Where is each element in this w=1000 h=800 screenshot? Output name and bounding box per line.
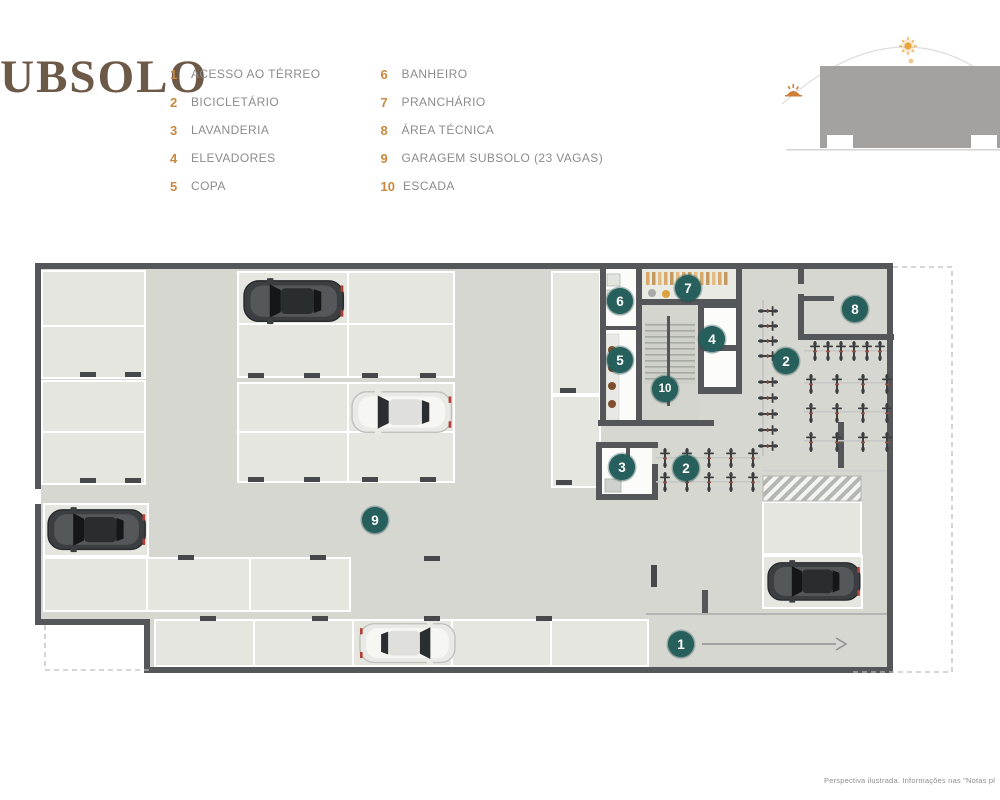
building-notch (971, 135, 997, 148)
bike-rack-rail (804, 440, 892, 442)
wall (626, 448, 630, 476)
wall-left (35, 263, 41, 625)
surfboard-icon (646, 272, 650, 285)
wheel-stop (304, 373, 320, 378)
surfboard-icon (664, 272, 668, 285)
bike-rack-rail (804, 411, 892, 413)
wheel-stop (304, 477, 320, 482)
parking-space (250, 558, 350, 611)
sun-path-diagram (782, 37, 1000, 151)
ramp-edge (646, 613, 887, 615)
wall-top (35, 263, 893, 269)
surfboard-icon (670, 272, 674, 285)
parking-space (155, 620, 254, 666)
surfboard-icon (658, 272, 662, 285)
wall (596, 494, 658, 500)
surfboard-icon (700, 272, 704, 285)
wheel-stop (310, 555, 326, 560)
wall (600, 269, 606, 426)
wall-bottom (144, 667, 893, 673)
parking-space (763, 502, 861, 554)
wall-stub (702, 590, 708, 615)
stool-icon (608, 400, 616, 408)
surfboard-icon (706, 272, 710, 285)
wheel-stop (178, 555, 194, 560)
elevator-shaft (704, 308, 736, 345)
wall (736, 269, 742, 302)
parking-space (238, 383, 348, 432)
surfboard-icon (688, 272, 692, 285)
wall (838, 422, 844, 468)
parking-space (238, 432, 348, 482)
wheel-stop (420, 373, 436, 378)
wheel-stop (312, 616, 328, 621)
property-boundary (45, 625, 150, 670)
sunset-icon (785, 84, 802, 97)
wheel-stop (200, 616, 216, 621)
floor-plan (0, 0, 1000, 800)
parking-space (42, 326, 145, 378)
parking-space (552, 396, 600, 487)
wall (636, 269, 642, 426)
bike-rack-rail (656, 457, 760, 459)
wheel-stop (424, 616, 440, 621)
wall (798, 268, 804, 284)
wheel-stop (80, 478, 96, 483)
helmet-icon (648, 289, 656, 297)
page: SUBSOLO 1ACESSO AO TÉRREO2BICICLETÁRIO3L… (0, 0, 1000, 800)
helmet-icon (662, 290, 670, 298)
wheel-stop (248, 373, 264, 378)
wall-step (144, 619, 150, 673)
wheel-stop (556, 480, 572, 485)
wall (596, 442, 602, 500)
wheel-stop (248, 477, 264, 482)
divider-line (763, 470, 893, 472)
wheel-stop (362, 373, 378, 378)
car-dark-bottom-right (768, 560, 860, 603)
wheel-stop (125, 478, 141, 483)
hatch-area (763, 476, 861, 501)
wheel-stop (362, 477, 378, 482)
surfboard-icon (682, 272, 686, 285)
stair-rail (667, 316, 670, 406)
parking-space (147, 558, 250, 611)
elevator-shaft (704, 351, 736, 387)
wall (798, 294, 804, 340)
sink-icon (607, 290, 620, 304)
bike-rack-rail (762, 300, 764, 456)
wall (804, 296, 834, 301)
parking-space (452, 620, 551, 666)
wall-opening (35, 489, 41, 504)
car-dark-top (244, 278, 343, 324)
parking-space (348, 272, 454, 324)
wall-right (887, 263, 893, 673)
bike-rack-rail (656, 481, 760, 483)
car-dark-left (48, 507, 145, 552)
wall (598, 420, 714, 426)
parking-space (42, 432, 145, 484)
wall-step (35, 619, 150, 625)
parking-space (552, 272, 600, 394)
washer-icon (605, 479, 621, 492)
surfboard-icon (676, 272, 680, 285)
parking-space (254, 620, 353, 666)
wheel-stop (420, 477, 436, 482)
ground-line (786, 149, 1000, 151)
car-white-bottom (360, 621, 455, 665)
stool-icon (608, 382, 616, 390)
room-lavanderia (596, 442, 658, 500)
wheel-stop (651, 565, 657, 587)
parking-space (348, 324, 454, 377)
stool-icon (608, 364, 616, 372)
wheel-stop (560, 388, 576, 393)
surfboard-icon (712, 272, 716, 285)
parking-space (348, 432, 454, 482)
wheel-stop (424, 556, 440, 561)
parking-space (551, 620, 648, 666)
surfboard-icon (652, 272, 656, 285)
building-notch (827, 135, 853, 148)
surfboard-icon (718, 272, 722, 285)
wheel-stop (125, 372, 141, 377)
wall (636, 299, 742, 305)
bike-rack-rail (804, 350, 890, 352)
toilet-icon (607, 274, 620, 286)
wheel-stop (80, 372, 96, 377)
surfboard-icon (724, 272, 728, 285)
parking-space (42, 271, 145, 326)
sun-icon (899, 37, 917, 63)
surfboard-icon (694, 272, 698, 285)
wall (596, 442, 658, 448)
wheel-stop (536, 616, 552, 621)
footer-note: Perspectiva ilustrada. Informações nas "… (824, 776, 995, 785)
wall (798, 334, 894, 340)
car-white-middle (352, 389, 451, 435)
parking-space (44, 558, 147, 611)
wall (606, 326, 636, 330)
bike-rack-rail (804, 382, 892, 384)
stool-icon (608, 346, 616, 354)
parking-space (42, 381, 145, 432)
parking-space (238, 324, 348, 377)
